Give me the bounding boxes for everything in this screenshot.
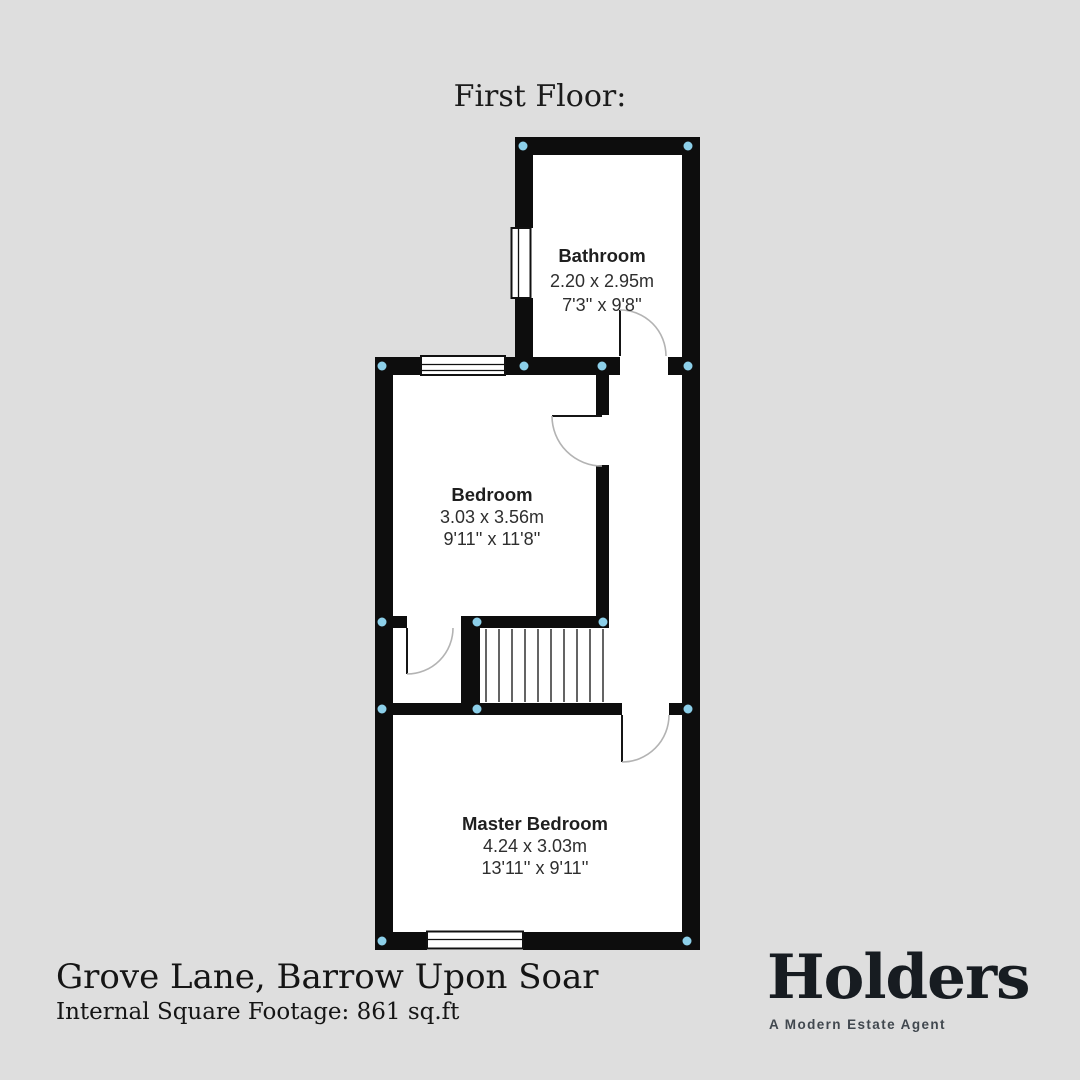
property-footer: Grove Lane, Barrow Upon Soar Internal Sq… xyxy=(56,959,599,1025)
brand-name: Holders xyxy=(767,946,1029,1010)
brand-tagline: A Modern Estate Agent xyxy=(769,1017,1029,1032)
corner-marker-icon xyxy=(598,362,607,371)
window-frame xyxy=(421,356,505,375)
master-window-icon xyxy=(427,932,523,949)
floorplan-drawing: Bathroom 2.20 x 2.95m 7'3'' x 9'8'' Bedr… xyxy=(0,0,1080,1080)
bedroom-window-icon xyxy=(421,356,505,375)
bedroom-name-label: Bedroom xyxy=(451,484,532,505)
wall-stairs-divider xyxy=(461,628,480,703)
corner-marker-icon xyxy=(378,618,387,627)
floorplan-page: First Floor: xyxy=(0,0,1080,1080)
wall-right-exterior xyxy=(682,137,700,950)
corner-marker-icon xyxy=(684,705,693,714)
property-address: Grove Lane, Barrow Upon Soar xyxy=(56,959,599,996)
corner-marker-icon xyxy=(378,937,387,946)
bathroom-metric-label: 2.20 x 2.95m xyxy=(550,271,654,291)
master-bedroom-name-label: Master Bedroom xyxy=(462,813,608,834)
wall-bedroom-bottom-right xyxy=(461,616,609,628)
master-bedroom-imperial-label: 13'11'' x 9'11'' xyxy=(481,858,588,878)
wall-master-top xyxy=(375,703,622,715)
wall-bedroom-right-lower xyxy=(596,465,609,628)
wall-bathroom-left-upper xyxy=(515,137,533,228)
wall-bathroom-top xyxy=(515,137,700,155)
corner-marker-icon xyxy=(519,142,528,151)
corner-marker-icon xyxy=(473,618,482,627)
bedroom-imperial-label: 9'11'' x 11'8'' xyxy=(443,529,540,549)
corner-marker-icon xyxy=(684,362,693,371)
corner-marker-icon xyxy=(684,142,693,151)
bedroom-metric-label: 3.03 x 3.56m xyxy=(440,507,544,527)
bathroom-imperial-label: 7'3'' x 9'8'' xyxy=(562,295,642,315)
corner-marker-icon xyxy=(378,362,387,371)
bathroom-window-icon xyxy=(512,228,531,298)
bathroom-name-label: Bathroom xyxy=(558,245,645,266)
corner-marker-icon xyxy=(599,618,608,627)
wall-left-exterior xyxy=(375,357,393,950)
square-footage: Internal Square Footage: 861 sq.ft xyxy=(56,999,599,1025)
wall-bottom-right xyxy=(523,932,700,950)
corner-marker-icon xyxy=(683,937,692,946)
window-frame xyxy=(512,228,531,298)
master-bedroom-metric-label: 4.24 x 3.03m xyxy=(483,836,587,856)
brand-logo: Holders A Modern Estate Agent xyxy=(767,946,1029,1032)
corner-marker-icon xyxy=(520,362,529,371)
corner-marker-icon xyxy=(473,705,482,714)
corner-marker-icon xyxy=(378,705,387,714)
